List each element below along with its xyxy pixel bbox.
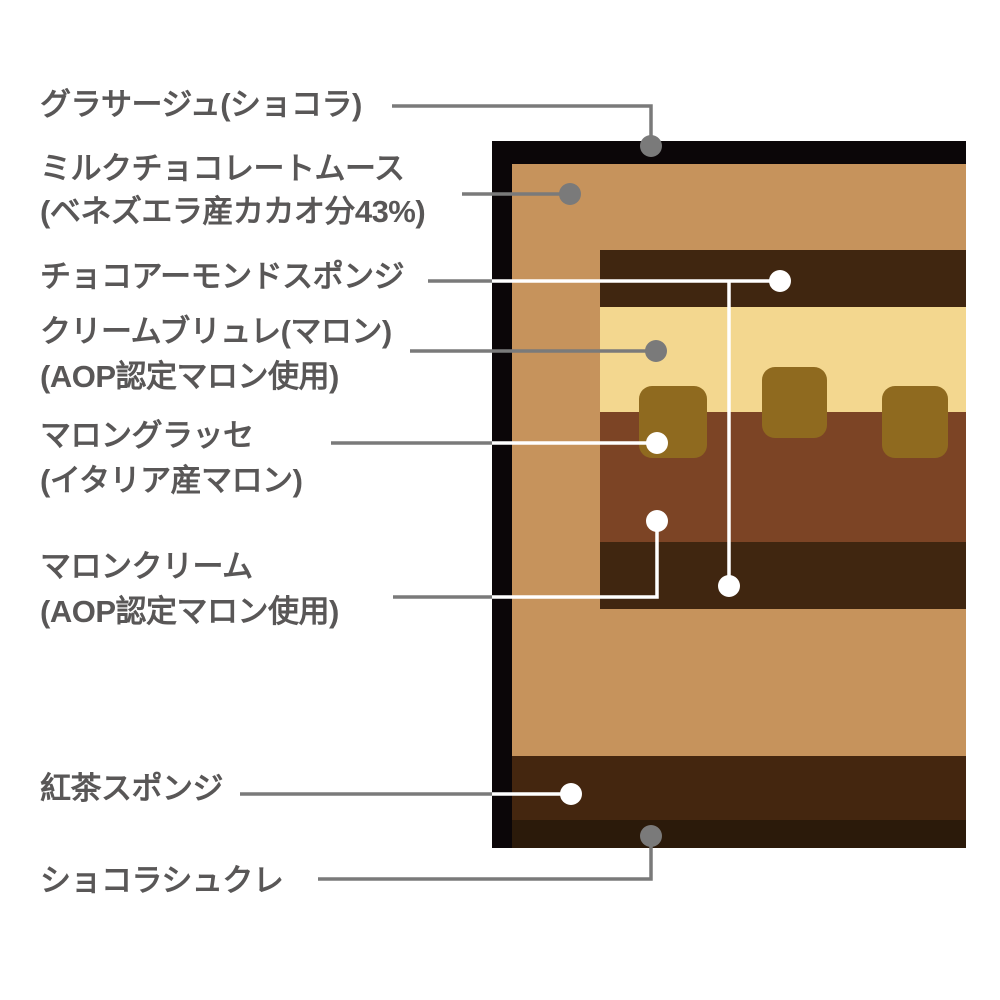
- label-choco-almond-sponge: チョコアーモンドスポンジ: [40, 254, 404, 299]
- label-tea-text: 紅茶スポンジ: [40, 766, 223, 811]
- layer-chocolat-sucre: [512, 820, 966, 848]
- connector-sponge-dot-bottom: [718, 575, 740, 597]
- connector-sponge-dot-top: [769, 270, 791, 292]
- connector-glace-dot: [646, 432, 668, 454]
- label-marron-cream-text-line1: マロンクリーム: [40, 544, 339, 589]
- connector-sucre-dot: [640, 825, 662, 847]
- label-marron-cream-text-line2: (AOP認定マロン使用): [40, 589, 339, 634]
- label-sucre-text: ショコラシュクレ: [40, 858, 283, 903]
- label-tea-sponge: 紅茶スポンジ: [40, 766, 223, 811]
- connector-brulee-dot: [645, 340, 667, 362]
- label-glace-text-line2: (イタリア産マロン): [40, 458, 302, 503]
- label-marron-glace: マロングラッセ (イタリア産マロン): [40, 413, 302, 503]
- label-sponge-text: チョコアーモンドスポンジ: [40, 254, 404, 299]
- label-mousse-text-line1: ミルクチョコレートムース: [40, 147, 425, 190]
- label-glacage: グラサージュ(ショコラ): [40, 82, 362, 127]
- marron-glace-piece-3: [882, 386, 948, 458]
- connector-glacage-dot: [640, 135, 662, 157]
- label-marron-cream: マロンクリーム (AOP認定マロン使用): [40, 544, 339, 634]
- label-brulee-text-line1: クリームブリュレ(マロン): [40, 309, 392, 354]
- label-glacage-text: グラサージュ(ショコラ): [40, 82, 362, 127]
- connector-marron-cream-dot: [646, 510, 668, 532]
- label-chocolat-sucre: ショコラシュクレ: [40, 858, 283, 903]
- cake-layer-diagram: グラサージュ(ショコラ) ミルクチョコレートムース (ベネズエラ産カカオ分43%…: [0, 0, 1000, 1000]
- connector-tea-dot: [560, 783, 582, 805]
- marron-glace-piece-2: [762, 367, 827, 438]
- label-glace-text-line1: マロングラッセ: [40, 413, 302, 458]
- layer-choco-almond-sponge-bottom: [600, 542, 966, 609]
- label-creme-brulee: クリームブリュレ(マロン) (AOP認定マロン使用): [40, 309, 392, 399]
- label-mousse-text-line2: (ベネズエラ産カカオ分43%): [40, 190, 425, 233]
- connector-glacage-line: [392, 106, 651, 146]
- connector-mousse-dot: [559, 183, 581, 205]
- label-brulee-text-line2: (AOP認定マロン使用): [40, 354, 392, 399]
- label-milk-chocolate-mousse: ミルクチョコレートムース (ベネズエラ産カカオ分43%): [40, 147, 425, 233]
